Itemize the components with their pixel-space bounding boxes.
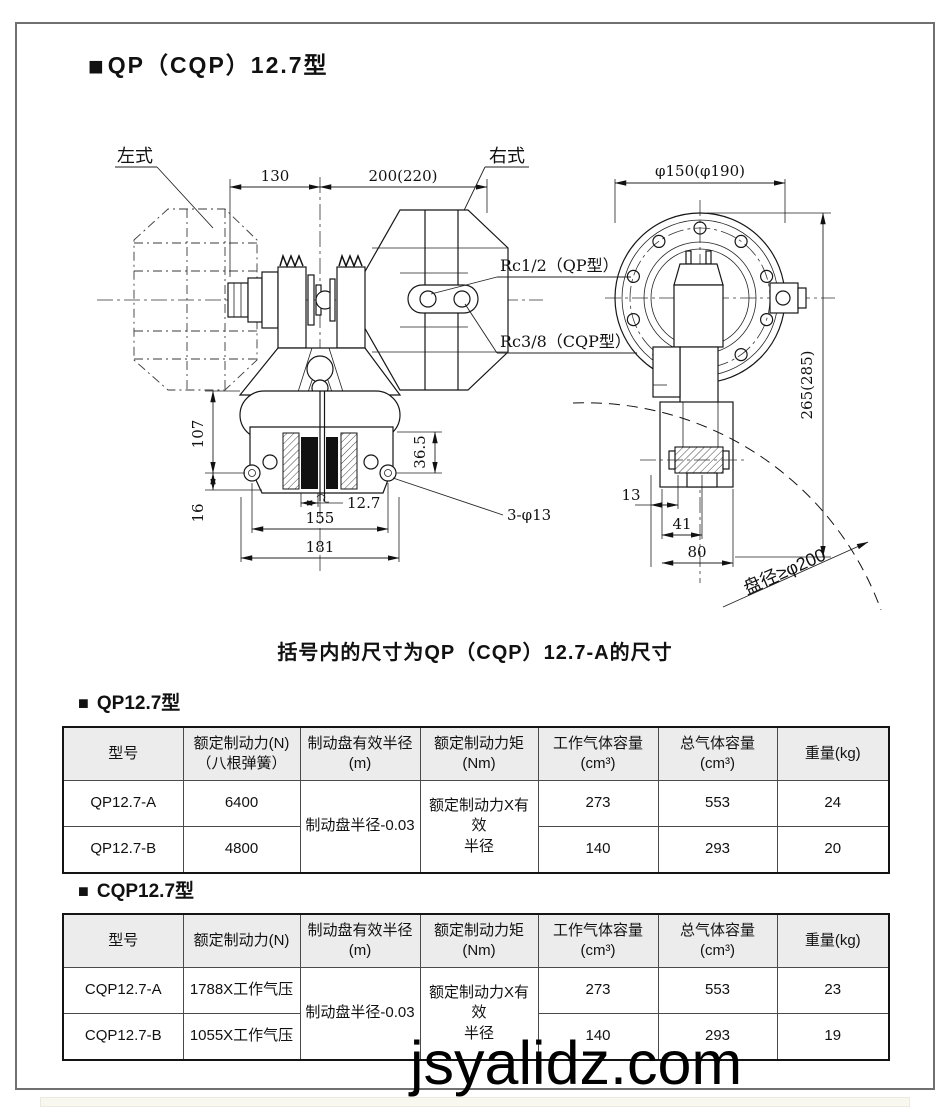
note-mount-holes: 3-φ13 [507,506,551,524]
cylinder-body [640,251,747,487]
col-total-gas: 总气体容量 (cm³) [658,914,777,968]
bottom-strip [40,1097,910,1107]
dim-200-220: 200(220) [369,167,438,185]
cell-force: 1788X工作气压 [183,968,300,1014]
table-row: CQP12.7-A 1788X工作气压 制动盘半径-0.03 额定制动力X有效 … [63,968,889,1014]
cell-disc-radius: 制动盘半径-0.03 [300,968,420,1061]
qp-header-row: 型号 额定制动力(N) （八根弹簧） 制动盘有效半径 (m) 额定制动力矩 (N… [63,727,889,781]
cell-weight: 19 [777,1014,889,1061]
col-model: 型号 [63,914,183,968]
dim-13: 13 [621,486,640,504]
square-bullet-icon: ■ [78,881,89,901]
cell-model: QP12.7-B [63,827,183,874]
dim-80: 80 [687,543,706,561]
col-rated-torque: 额定制动力矩 (Nm) [420,914,538,968]
col-weight: 重量(kg) [777,727,889,781]
dim-16: 16 [189,503,207,522]
cell-weight: 20 [777,827,889,874]
label-right-type: 右式 [489,146,525,166]
air-chamber [363,210,508,390]
col-rated-force: 额定制动力(N) （八根弹簧） [183,727,300,781]
dim-41: 41 [672,515,691,533]
dim-d150: φ150(φ190) [655,162,745,180]
shaft-assembly [228,256,365,348]
port-label-qp: Rc1/2（QP型） [500,256,619,275]
caliper-body [240,348,400,502]
catalog-page: ■QP（CQP）12.7型 [0,0,950,1108]
col-total-gas: 总气体容量 (cm³) [658,727,777,781]
cell-working-gas: 273 [538,781,658,827]
cell-model: CQP12.7-A [63,968,183,1014]
dim-265: 265(285) [798,351,816,420]
dim-130: 130 [261,167,290,185]
dim-181: 181 [306,538,335,556]
dim-155: 155 [306,509,335,527]
port-label-cqp: Rc3/8（CQP型） [500,332,631,351]
cell-total-gas: 293 [658,827,777,874]
col-rated-force: 额定制动力(N) [183,914,300,968]
col-disc-radius: 制动盘有效半径 (m) [300,727,420,781]
cell-working-gas: 140 [538,827,658,874]
cell-torque: 额定制动力X有效 半径 [420,781,538,874]
col-working-gas: 工作气体容量 (cm³) [538,727,658,781]
page-title-text: QP（CQP）12.7型 [108,52,329,78]
col-disc-radius: 制动盘有效半径 (m) [300,914,420,968]
square-bullet-icon: ■ [78,693,89,713]
cell-total-gas: 553 [658,968,777,1014]
square-bullet-icon: ■ [88,51,104,81]
qp-table-title: ■QP12.7型 [78,688,180,715]
cell-force: 4800 [183,827,300,874]
cell-disc-radius: 制动盘半径-0.03 [300,781,420,874]
cqp-table-title-text: CQP12.7型 [97,881,194,902]
dim-12-7: 12.7 [347,494,380,512]
qp-spec-table: 型号 额定制动力(N) （八根弹簧） 制动盘有效半径 (m) 额定制动力矩 (N… [62,726,890,874]
cell-weight: 23 [777,968,889,1014]
cell-force: 1055X工作气压 [183,1014,300,1061]
col-model: 型号 [63,727,183,781]
drawing-caption: 括号内的尺寸为QP（CQP）12.7-A的尺寸 [15,636,935,665]
label-left-type: 左式 [117,146,153,166]
cqp-table-title: ■CQP12.7型 [78,876,194,903]
qp-table-title-text: QP12.7型 [97,693,180,714]
dim-107: 107 [189,420,207,449]
watermark: jsyalidz.com [410,1028,742,1098]
front-view: 130 200(220) 左式 右式 [97,146,637,573]
col-rated-torque: 额定制动力矩 (Nm) [420,727,538,781]
cell-model: CQP12.7-B [63,1014,183,1061]
table-row: QP12.7-A 6400 制动盘半径-0.03 额定制动力X有效 半径 273… [63,781,889,827]
note-disc-diameter: 盘径≥φ200 [740,545,828,599]
page-title: ■QP（CQP）12.7型 [88,46,329,82]
engineering-drawing: 130 200(220) 左式 右式 [35,105,915,635]
cell-working-gas: 273 [538,968,658,1014]
col-working-gas: 工作气体容量 (cm³) [538,914,658,968]
side-view: φ150(φ190) 265(285) 盘径≥φ200 13 41 80 [573,162,881,610]
dim-36-5: 36.5 [411,435,429,468]
col-weight: 重量(kg) [777,914,889,968]
cqp-header-row: 型号 额定制动力(N) 制动盘有效半径 (m) 额定制动力矩 (Nm) 工作气体… [63,914,889,968]
cell-force: 6400 [183,781,300,827]
cell-weight: 24 [777,781,889,827]
cell-total-gas: 553 [658,781,777,827]
cell-model: QP12.7-A [63,781,183,827]
